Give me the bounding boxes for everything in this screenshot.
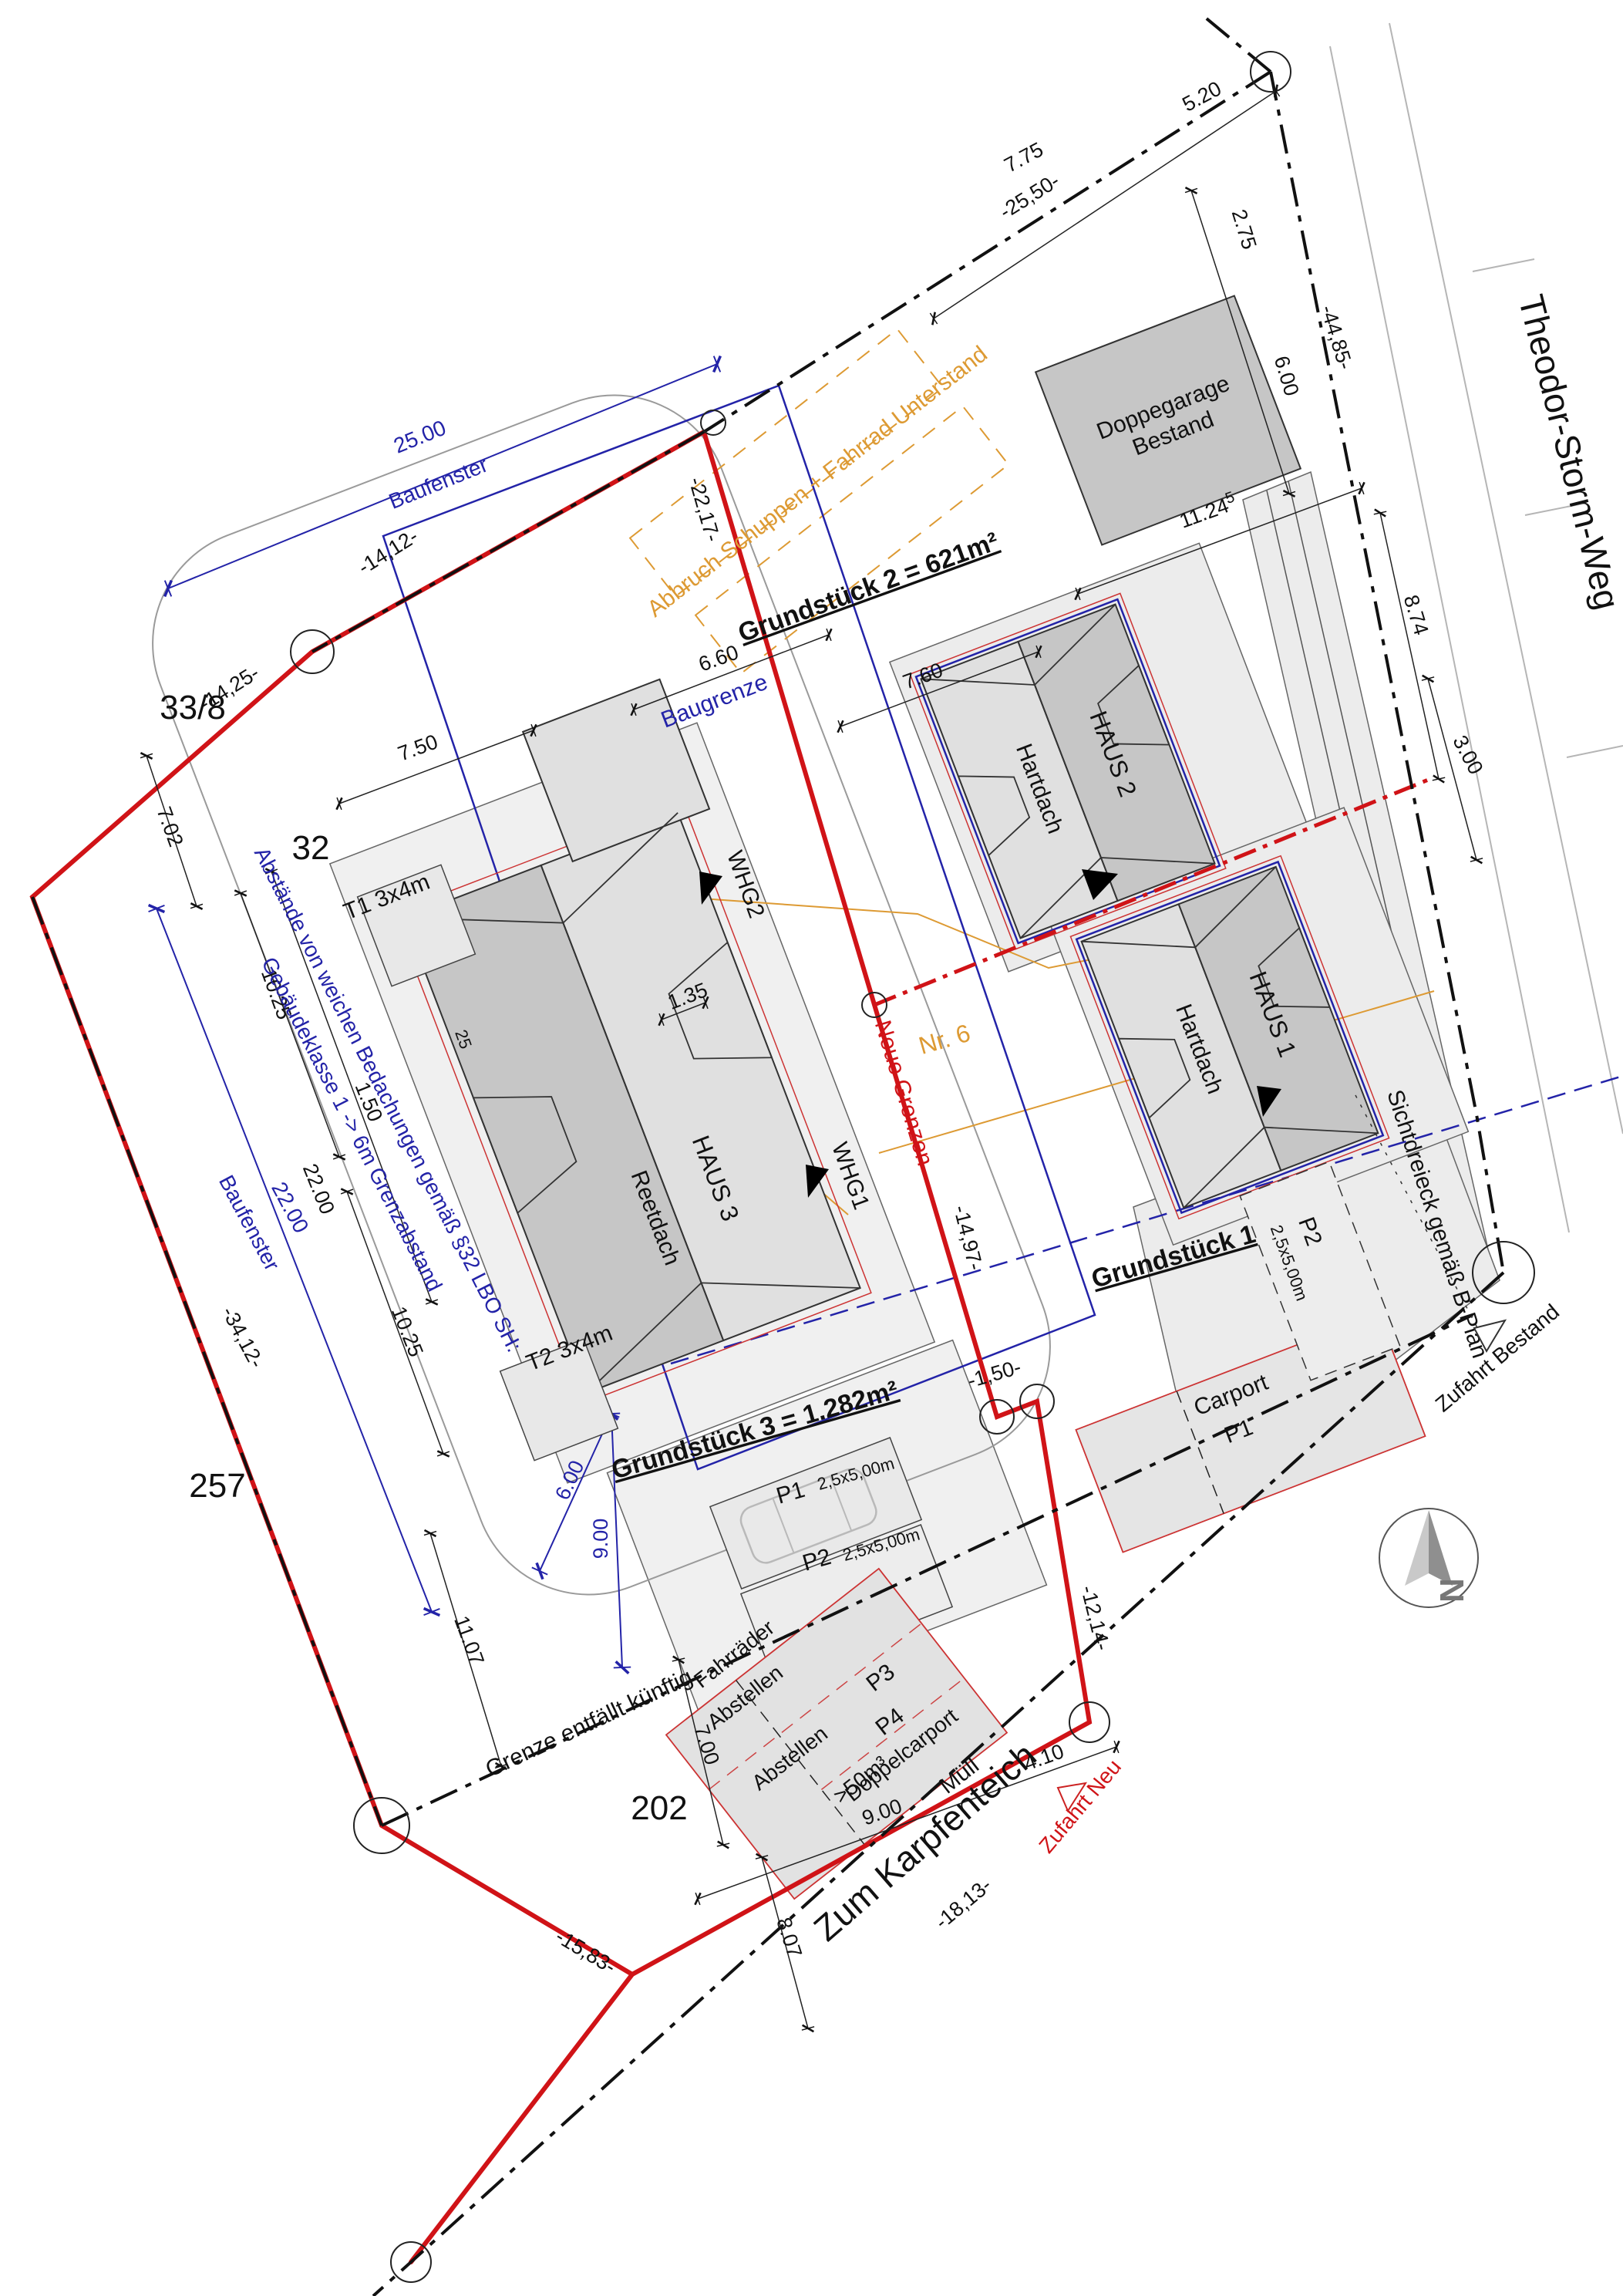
parcel-nr6: Nr. 6 [916, 1019, 974, 1060]
dim-15-83: -15,83- [551, 1924, 620, 1978]
dim-8-74: 8.74 [1399, 592, 1433, 638]
dim-2-75: 2.75 [1227, 207, 1261, 252]
access-new-label: Zufahrt Neu [1034, 1755, 1126, 1857]
plot-2-title: Grundstück 2 = 621m² [734, 527, 1002, 649]
dim-11-07: 11.07 [450, 1613, 489, 1668]
parcel-202: 202 [631, 1789, 687, 1827]
dim-minus-1-50: -1,50- [965, 1355, 1023, 1392]
dim-25-00-blue: 25.00 [390, 416, 450, 458]
parcel-257: 257 [189, 1467, 245, 1505]
dim-6-00: 6.00 [1270, 353, 1304, 399]
north-label: N [1433, 1578, 1470, 1603]
dim-3-00: 3.00 [1448, 732, 1487, 778]
dim-8-07: 8.07 [772, 1915, 806, 1961]
parcel-33-8: 33/8 [160, 689, 226, 727]
boundary-removed-label: Grenze entfällt künftig [482, 1664, 696, 1782]
dim-10-25-2: 10.25 [387, 1303, 428, 1360]
dim-7-75: 7.75 [1001, 137, 1047, 177]
dim-25-50: -25,50- [995, 169, 1063, 224]
dim-14-97: -14,97- [949, 1203, 988, 1273]
north-arrow: N [1379, 1509, 1478, 1607]
dim-12-14: -12,14- [1076, 1583, 1115, 1653]
parcel-32: 32 [292, 829, 330, 867]
street-theodor-storm-weg: Theodor-Storm-Weg [1511, 291, 1623, 614]
dim-14-12: -14,12- [354, 524, 422, 579]
dim-9-00-blue: 9.00 [589, 1519, 612, 1559]
dim-7-50: 7.50 [395, 730, 441, 765]
site-plan: Doppegarage Bestand HAUS 2 Hartdach HAUS… [0, 0, 1623, 2296]
dim-34-12: -34,12- [217, 1303, 269, 1372]
dim-18-13: -18,13- [931, 1873, 996, 1934]
dim-5-20: 5.20 [1179, 76, 1225, 116]
baufenster-top-label: Baufenster [386, 452, 491, 513]
dim-7-02: 7.02 [152, 804, 187, 850]
